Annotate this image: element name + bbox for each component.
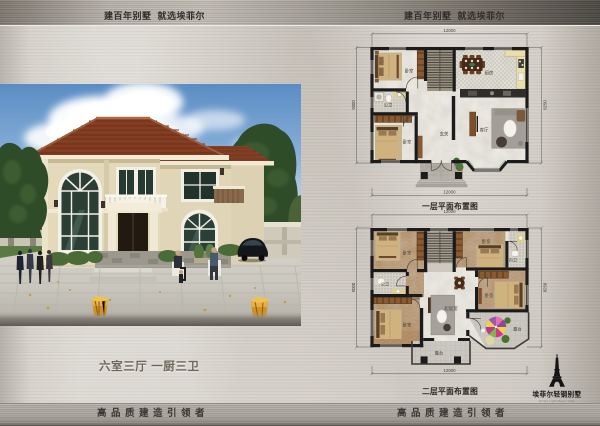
svg-text:公卫: 公卫 — [384, 103, 393, 108]
svg-text:厨房: 厨房 — [485, 70, 494, 77]
svg-text:8250: 8250 — [542, 282, 547, 292]
svg-text:起居室: 起居室 — [444, 305, 458, 312]
svg-text:9000: 9000 — [351, 100, 356, 110]
svg-text:12000: 12000 — [444, 28, 457, 33]
svg-text:客厅: 客厅 — [480, 127, 489, 134]
svg-text:卧室: 卧室 — [403, 322, 412, 329]
svg-text:9000: 9000 — [351, 282, 356, 292]
svg-text:12000: 12000 — [444, 209, 457, 214]
svg-text:8250: 8250 — [542, 100, 547, 110]
svg-text:卧室: 卧室 — [405, 68, 414, 75]
svg-text:卧室: 卧室 — [485, 292, 494, 299]
svg-text:玄关: 玄关 — [440, 131, 449, 138]
svg-text:埃菲尔轻钢别墅: 埃菲尔轻钢别墅 — [533, 390, 582, 399]
svg-text:卧室: 卧室 — [482, 238, 491, 245]
svg-text:卧室: 卧室 — [403, 139, 412, 146]
svg-text:Eiffel Light Steel Villa: Eiffel Light Steel Villa — [539, 399, 574, 403]
svg-text:内卫: 内卫 — [509, 257, 517, 264]
svg-text:公卫: 公卫 — [381, 282, 389, 287]
svg-text:露台: 露台 — [513, 326, 521, 333]
svg-text:12000: 12000 — [444, 190, 457, 195]
svg-text:露台: 露台 — [435, 350, 443, 357]
svg-text:卧室: 卧室 — [403, 250, 412, 257]
svg-text:12000: 12000 — [444, 368, 457, 373]
